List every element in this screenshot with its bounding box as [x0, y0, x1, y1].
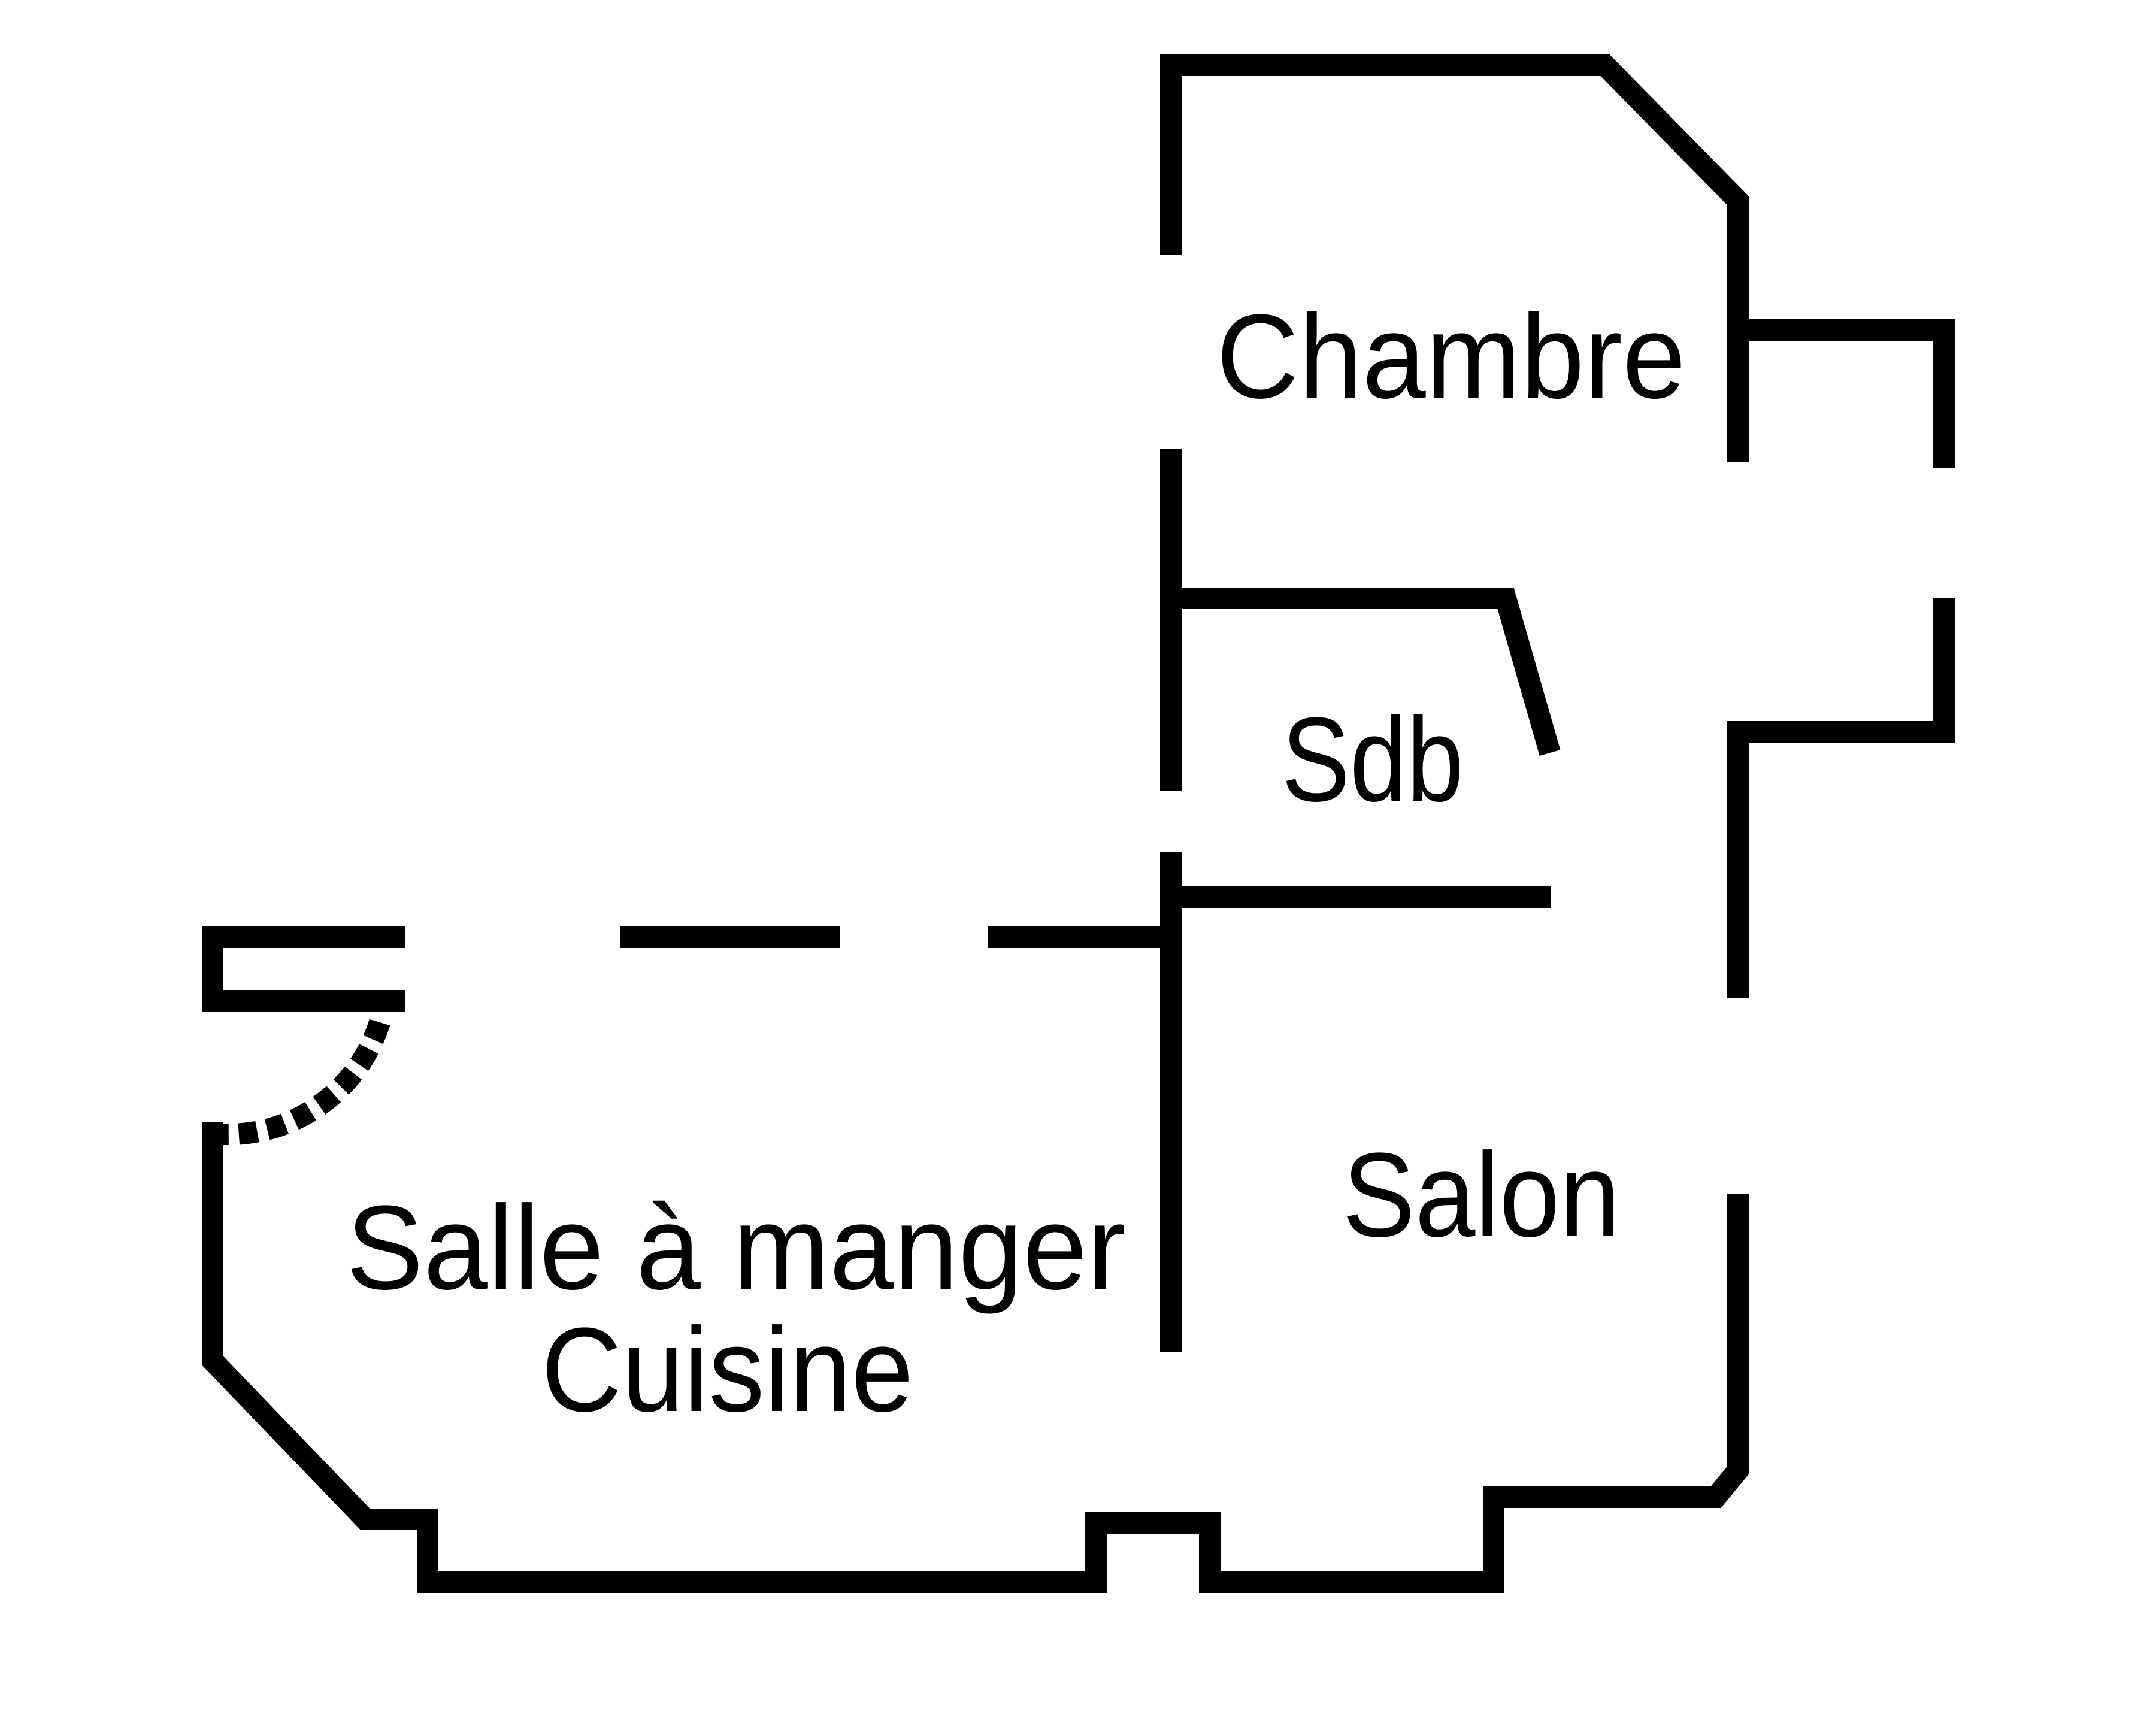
svg-text:Salon: Salon	[1343, 1128, 1620, 1262]
svg-text:Salle à manger: Salle à manger	[346, 1181, 1126, 1315]
svg-text:Cuisine: Cuisine	[541, 1303, 913, 1437]
svg-text:Sdb: Sdb	[1282, 693, 1464, 826]
svg-text:Chambre: Chambre	[1216, 290, 1686, 423]
